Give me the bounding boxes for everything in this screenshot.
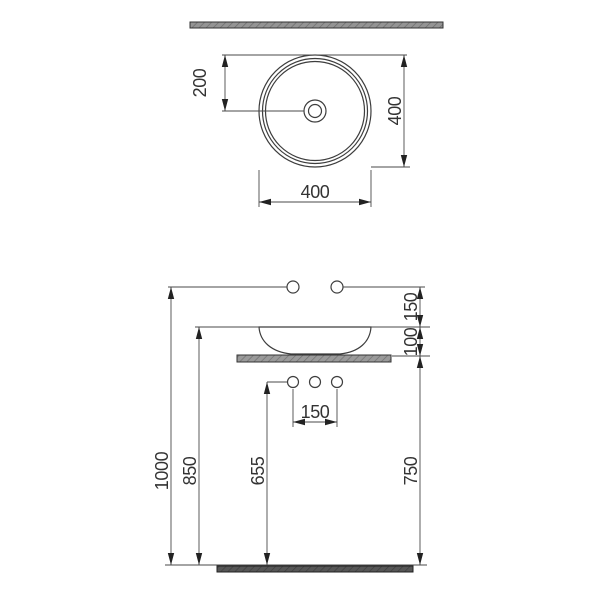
arrow-up-icon — [417, 356, 423, 368]
arrow-right-icon — [359, 199, 371, 205]
arrow-down-icon — [401, 155, 407, 167]
dim-tap-height: 1000 — [152, 287, 174, 565]
dim-200-label: 200 — [190, 68, 210, 97]
dim-basin-height: 400 — [371, 55, 410, 167]
tap-hole-left — [287, 281, 299, 293]
arrow-down-icon — [417, 553, 423, 565]
arrow-down-icon — [222, 99, 228, 111]
dim-drain-offset: 200 — [190, 55, 228, 111]
drain-inner-circle — [309, 105, 322, 118]
drawing-canvas: 200 400 400 — [0, 0, 600, 594]
basin-profile — [259, 327, 371, 354]
dim-150-label: 150 — [401, 292, 421, 321]
arrow-down-icon — [264, 553, 270, 565]
drain-outer-circle — [304, 100, 326, 122]
front-view: 150 1000 850 655 — [152, 281, 430, 572]
drain-hole-center — [310, 377, 321, 388]
technical-drawing: 200 400 400 — [0, 0, 600, 594]
dim-right-chain: 150 100 750 — [401, 287, 423, 565]
arrow-down-icon — [168, 553, 174, 565]
dim-850-label: 850 — [180, 456, 200, 485]
floor-section-bar — [217, 566, 413, 572]
arrow-up-icon — [196, 327, 202, 339]
dim-655-label: 655 — [248, 456, 268, 485]
dim-drain-spacing: 150 — [293, 389, 337, 427]
dim-150-spacing-label: 150 — [301, 402, 330, 422]
dim-750-label: 750 — [401, 456, 421, 485]
dim-basin-width: 400 — [259, 170, 371, 207]
arrow-up-icon — [264, 382, 270, 394]
top-view: 200 400 400 — [190, 22, 443, 207]
dim-400-horizontal-label: 400 — [301, 182, 330, 202]
wall-section-bar — [190, 22, 443, 28]
arrow-up-icon — [222, 55, 228, 67]
supply-hole-right — [332, 377, 343, 388]
tap-hole-right — [331, 281, 343, 293]
dim-1000-label: 1000 — [152, 451, 172, 490]
arrow-down-icon — [196, 553, 202, 565]
dim-100-label: 100 — [401, 327, 421, 356]
dim-drain-height: 655 — [248, 382, 270, 565]
dim-400-vertical-label: 400 — [385, 96, 405, 125]
supply-hole-left — [288, 377, 299, 388]
countertop-bar — [237, 355, 391, 362]
dim-rim-height: 850 — [180, 327, 202, 565]
arrow-up-icon — [168, 287, 174, 299]
arrow-left-icon — [259, 199, 271, 205]
arrow-up-icon — [401, 55, 407, 67]
